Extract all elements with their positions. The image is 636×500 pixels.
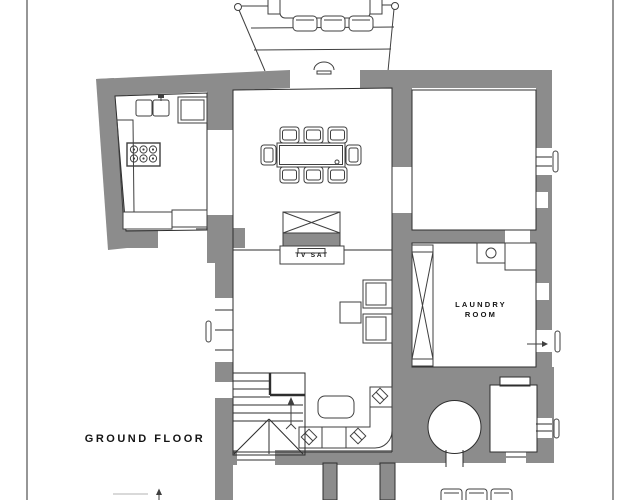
plan-title: GROUND FLOOR <box>70 433 220 445</box>
kitchen-counter <box>172 210 207 227</box>
kitchen-sink-icon <box>136 94 169 116</box>
stove-burners-icon <box>127 143 160 166</box>
door-leaf-icon <box>553 151 558 172</box>
side-table-icon <box>340 302 361 323</box>
terrace-chair-icon <box>321 16 345 31</box>
terrace-chair-icon <box>441 489 512 500</box>
floor-plan-canvas: GROUND FLOOR TV SAT LAUNDRY ROOM <box>0 0 636 500</box>
dining-furniture <box>261 127 361 183</box>
door-leaf-icon <box>554 419 559 438</box>
pergola-post-icon <box>392 3 399 10</box>
storage-room-outline <box>412 90 536 230</box>
bottom-terrace <box>113 489 512 500</box>
dining-table-icon <box>277 143 345 167</box>
kitchen-furniture <box>117 94 207 229</box>
laundry-sink-icon <box>477 243 536 270</box>
laundry-room-label-line1: LAUNDRY <box>431 300 531 309</box>
laundry-room-label-line2: ROOM <box>431 310 531 319</box>
top-terrace <box>235 0 399 71</box>
door-leaf-icon <box>555 331 560 352</box>
coffee-table-icon <box>318 396 354 418</box>
threshold-step-icon <box>314 62 334 70</box>
floor-plan-drawing <box>0 0 636 500</box>
kitchen-counter <box>178 97 207 123</box>
door-leaf-icon <box>206 321 211 342</box>
wardrobe-x-icon <box>412 245 433 366</box>
armchair-icon <box>363 280 392 308</box>
living-furniture <box>299 280 392 448</box>
terrace-chair-icon <box>293 16 317 31</box>
north-arrow-icon <box>156 489 162 500</box>
pergola-post-icon <box>235 4 242 11</box>
terrace-chair-icon <box>349 16 373 31</box>
staircase <box>233 373 305 455</box>
armchair-icon <box>363 314 392 343</box>
kitchen-counter <box>123 212 172 229</box>
tv-sat-label: TV SAT <box>281 252 343 259</box>
